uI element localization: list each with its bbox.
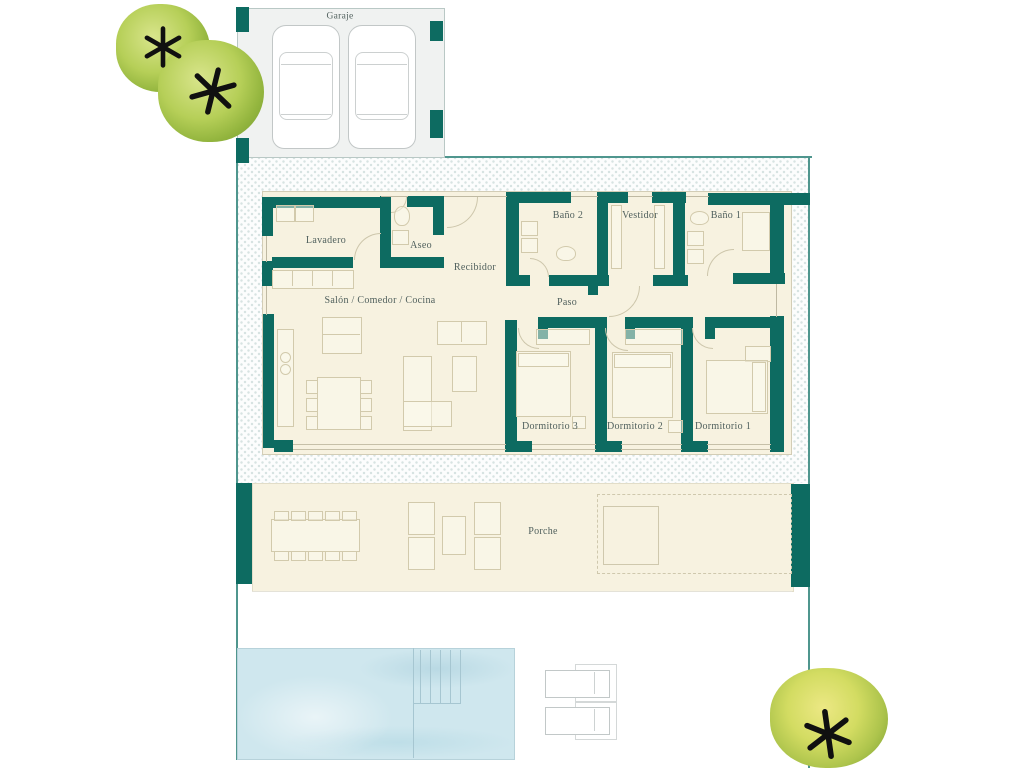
pool-steps-line [420, 650, 421, 704]
car-rearwindow-line [281, 114, 331, 115]
wardrobe-rail [611, 205, 622, 269]
wall-divider-dorm3-dorm2 [595, 317, 607, 452]
bed-pillow [614, 354, 671, 368]
sink [392, 230, 409, 245]
dining-chair [306, 398, 318, 412]
sun-lounger [545, 707, 610, 735]
porch-chair [291, 511, 306, 521]
sofa-chaise [403, 401, 452, 427]
glass-door-line [707, 444, 771, 450]
kitchen-counter [277, 329, 294, 427]
sideboard-line [461, 322, 462, 342]
porch-armchair [474, 502, 501, 535]
porch-armchair [408, 502, 435, 535]
window-line [776, 284, 777, 317]
island-line [322, 334, 360, 335]
dining-chair [360, 380, 372, 394]
wall-door-jamb [588, 286, 598, 295]
wall-top-banio1 [708, 193, 810, 205]
glass-door-line [621, 444, 682, 450]
pool-steps-line [460, 650, 461, 704]
sun-lounger [545, 670, 610, 698]
bed-pillow [752, 362, 766, 412]
sideboard [437, 321, 487, 345]
wall-banio2-left [506, 192, 519, 281]
porch-chair [325, 511, 340, 521]
porch-dining-table [271, 519, 360, 552]
car-cabin [355, 52, 409, 120]
window-line [266, 286, 267, 315]
room-label-dormitorio3: Dormitorio 3 [522, 422, 578, 432]
pool-steps-line [413, 703, 461, 704]
floor-plan-canvas: Garaje [0, 0, 1024, 768]
porch-chair [308, 511, 323, 521]
porch-chair [274, 551, 289, 561]
sink [521, 221, 538, 236]
terrace-edge-line [252, 591, 792, 592]
wall-segment [236, 7, 249, 32]
wall-left-upper [262, 197, 273, 236]
room-label-lavadero: Lavadero [306, 236, 346, 246]
room-label-recibidor: Recibidor [454, 263, 496, 273]
wall-right-lower [770, 316, 784, 452]
dining-chair [360, 416, 372, 430]
kitchen-island [322, 317, 362, 354]
sink [521, 238, 538, 253]
car-top-view [272, 25, 340, 149]
counter-divider-line [312, 271, 313, 286]
porch-chair [291, 551, 306, 561]
window-line [266, 236, 267, 262]
room-label-porche: Porche [528, 527, 558, 537]
room-label-paso: Paso [557, 298, 577, 308]
pool-steps-line [430, 650, 431, 704]
wall-mid-dorm1 [705, 317, 771, 328]
wall-foot [505, 441, 532, 452]
porch-pillar-wall [791, 484, 810, 587]
wall-mid-dorm3 [538, 317, 596, 328]
wall-segment [236, 138, 249, 163]
wall-left-lower [263, 314, 274, 448]
window-line [686, 196, 709, 197]
room-label-banio1: Baño 1 [711, 211, 741, 221]
glass-door-line [293, 444, 506, 450]
wall-foot [681, 441, 708, 452]
washer-appliance [276, 205, 295, 222]
sink [687, 231, 704, 246]
sink [687, 249, 704, 264]
wall-divider-banio2-vestidor [597, 192, 608, 286]
wardrobe [625, 329, 683, 345]
porch-armchair [474, 537, 501, 570]
wall-corner-foot [274, 440, 293, 452]
wall-aseo-bottom [380, 257, 444, 268]
pool-steps-line [450, 650, 451, 704]
kitchen-sink [280, 364, 291, 375]
room-label-dormitorio1: Dormitorio 1 [695, 422, 751, 432]
shower-tray [742, 212, 770, 251]
car-rearwindow-line [357, 114, 407, 115]
dryer-appliance [295, 205, 314, 222]
wall-vestidor-bottom [653, 275, 688, 286]
counter-divider-line [332, 271, 333, 286]
porch-pillar-wall [236, 483, 252, 584]
dining-table [317, 377, 361, 430]
toilet [394, 206, 410, 226]
counter-divider-line [292, 271, 293, 286]
kitchen-sink [280, 352, 291, 363]
porch-armchair [408, 537, 435, 570]
glass-door-line [532, 444, 596, 450]
nightstand [668, 420, 683, 433]
porch-chair [342, 511, 357, 521]
room-label-dormitorio2: Dormitorio 2 [607, 422, 663, 432]
wall-segment [430, 110, 443, 138]
room-label-garaje: Garaje [326, 12, 353, 22]
car-top-view [348, 25, 416, 149]
pergola-inner-square [603, 506, 659, 565]
porch-chair [308, 551, 323, 561]
dining-chair [360, 398, 372, 412]
lounger-headrest-line [594, 709, 595, 731]
wall-divider-vestidor-banio1 [673, 192, 685, 286]
tree-star-icon [140, 24, 186, 70]
window-line [571, 196, 598, 197]
wall-aseo-right [433, 196, 444, 235]
car-windshield-line [357, 64, 407, 65]
window-line [628, 196, 653, 197]
bed-pillow [518, 353, 569, 367]
room-label-banio2: Baño 2 [553, 211, 583, 221]
dining-chair [306, 380, 318, 394]
wall-foot [595, 441, 622, 452]
sink [690, 211, 709, 225]
lounger-headrest-line [594, 672, 595, 694]
dining-chair [306, 416, 318, 430]
porch-chair [325, 551, 340, 561]
room-label-salon: Salón / Comedor / Cocina [324, 296, 435, 306]
wall-banio2-bottom-r [549, 275, 609, 286]
car-windshield-line [281, 64, 331, 65]
kitchen-counter [272, 270, 354, 289]
car-cabin [279, 52, 333, 120]
pool [237, 648, 515, 760]
porch-chair [342, 551, 357, 561]
room-label-aseo: Aseo [410, 241, 432, 251]
wall-segment [430, 21, 443, 41]
porch-coffee-table [442, 516, 466, 555]
pool-steps-line [440, 650, 441, 704]
wall-lavadero-bottom [272, 257, 353, 268]
toilet [556, 246, 576, 261]
porch-chair [274, 511, 289, 521]
wall-banio2-bottom-l [506, 275, 530, 286]
tree-star-icon [796, 702, 859, 765]
armchair [452, 356, 477, 392]
wall-banio1-bottom [733, 273, 785, 284]
room-label-vestidor: Vestidor [622, 211, 658, 221]
wardrobe [536, 329, 590, 345]
